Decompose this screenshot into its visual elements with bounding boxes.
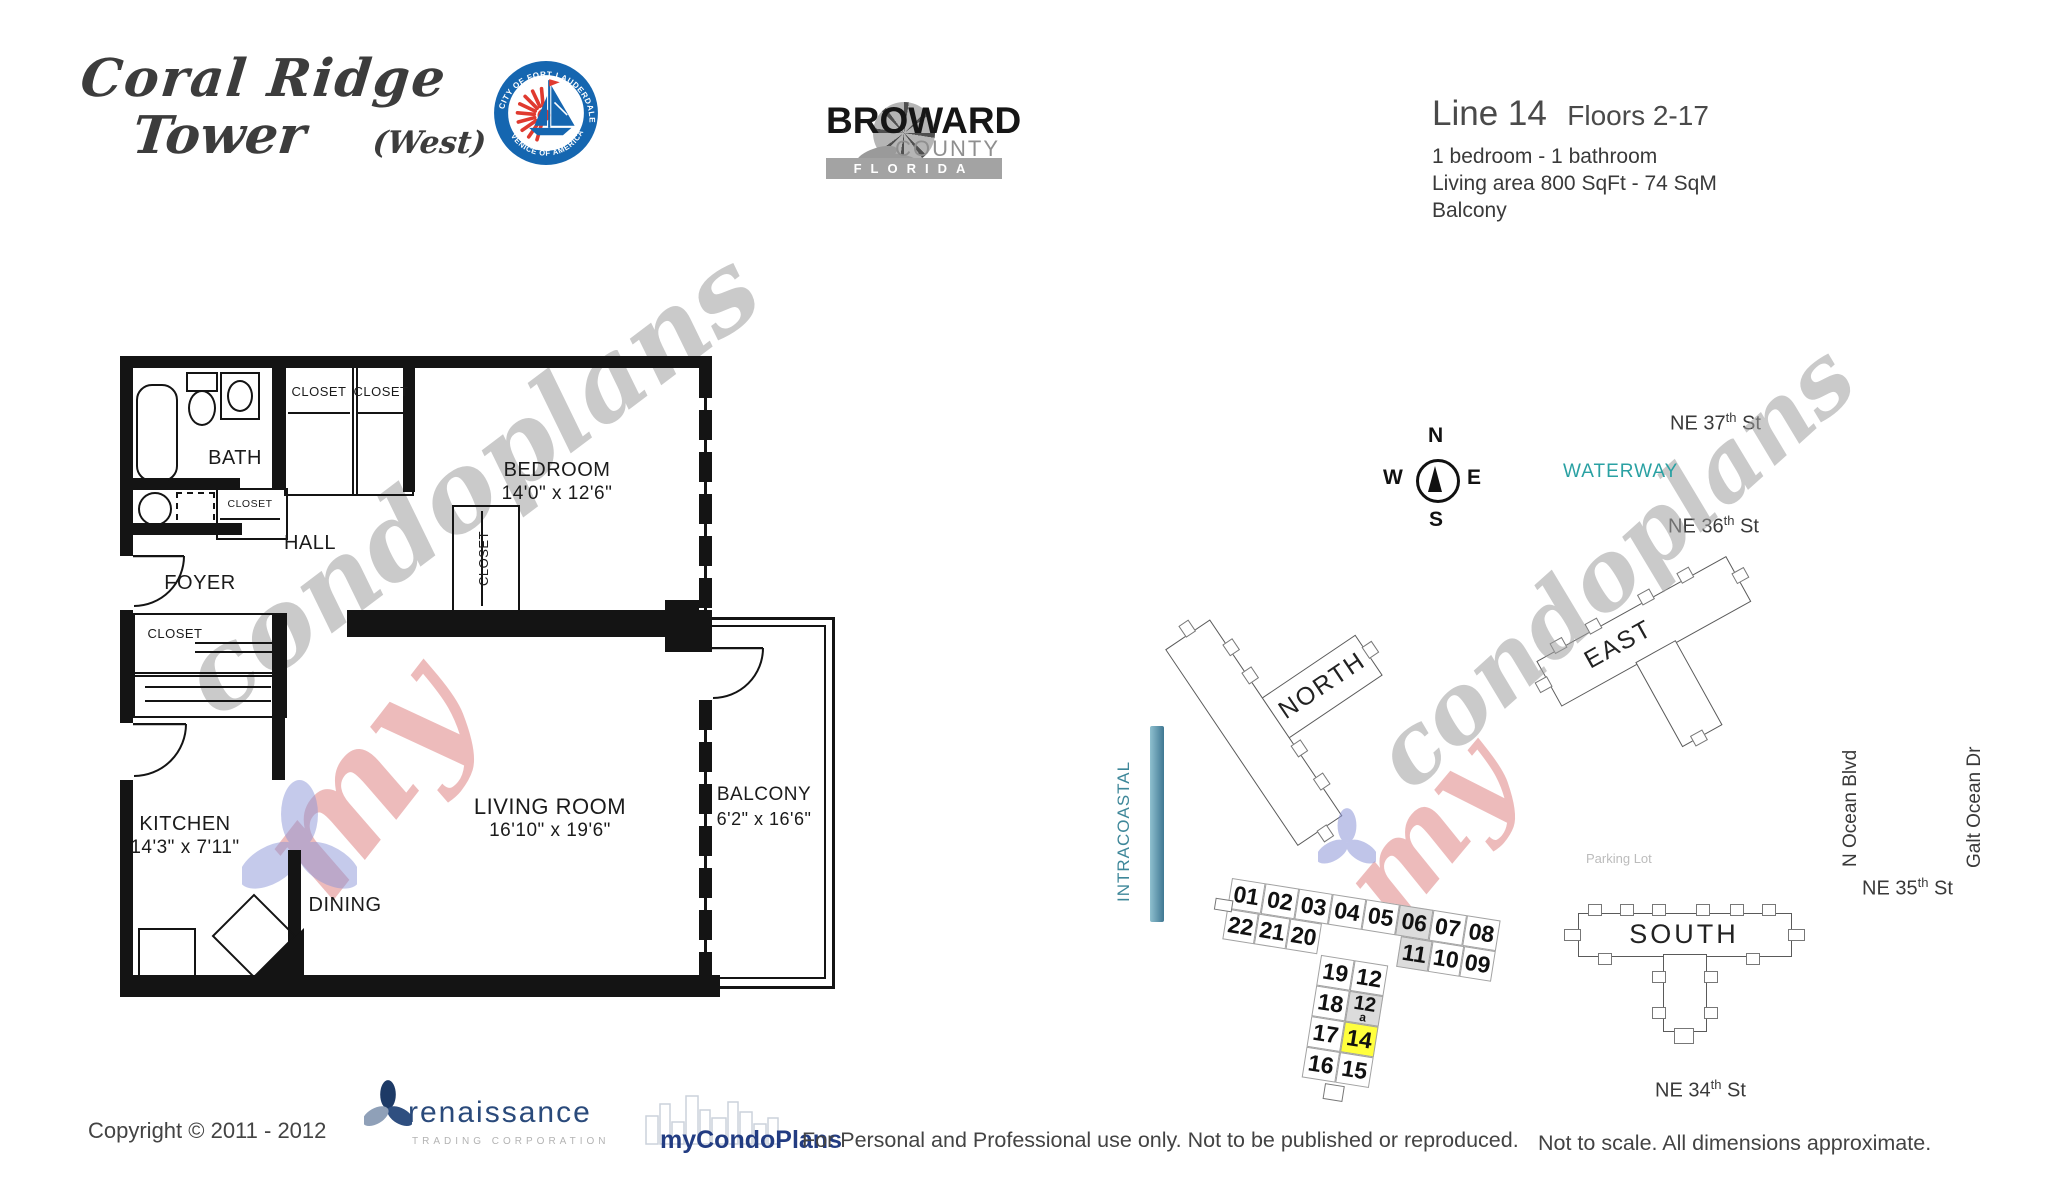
compass-e: E bbox=[1467, 466, 1481, 490]
compass-n: N bbox=[1428, 424, 1443, 448]
street-suffix: St bbox=[1721, 1080, 1745, 1102]
room-label-living-room: LIVING ROOM 16'10" x 19'6" bbox=[430, 795, 670, 843]
building-north: NORTH bbox=[1167, 557, 1434, 844]
balcony-bump bbox=[1214, 898, 1234, 913]
street-name: NE 37 bbox=[1670, 413, 1726, 435]
unit-living-area: Living area 800 SqFt - 74 SqM bbox=[1432, 171, 1717, 196]
room-label-bath: BATH bbox=[195, 446, 275, 470]
bedroom-dims: 14'0" x 12'6" bbox=[457, 482, 657, 506]
unit-12a-suffix: a bbox=[1359, 1011, 1367, 1022]
building-entry-bump bbox=[1323, 1083, 1345, 1102]
floor-plan: BATH CLOSET CLOSET BEDROOM 14'0" x 12'6"… bbox=[100, 350, 845, 1015]
usage-notice: For Personal and Professional use only. … bbox=[802, 1128, 1519, 1153]
condo-floor-plan-sheet: Coral Ridge Tower(West) CITY OF FO bbox=[0, 0, 2048, 1181]
building-entry-bump bbox=[1674, 1028, 1694, 1044]
intracoastal-bar bbox=[1150, 726, 1164, 922]
living-room-name: LIVING ROOM bbox=[430, 795, 670, 819]
building-south-stem bbox=[1663, 954, 1707, 1032]
bath-sink bbox=[227, 380, 253, 412]
unit-10: 10 bbox=[1428, 941, 1464, 977]
unit-09: 09 bbox=[1459, 946, 1495, 982]
shelf-line bbox=[145, 686, 271, 688]
unit-feature: Balcony bbox=[1432, 198, 1717, 223]
street-name: NE 34 bbox=[1655, 1080, 1711, 1102]
closet-shelf-line bbox=[195, 651, 277, 653]
wall bbox=[272, 368, 284, 490]
room-label-balcony: BALCONY 6'2" x 16'6" bbox=[708, 783, 820, 831]
watermark-right: condoplans my bbox=[1000, 350, 2048, 1050]
compass-needle bbox=[1428, 466, 1442, 492]
wall bbox=[347, 610, 712, 637]
street-label-ne-37th-st: NE 37th St bbox=[1670, 410, 1761, 436]
scale-disclaimer: Not to scale. All dimensions approximate… bbox=[1538, 1131, 1931, 1156]
unit-15: 15 bbox=[1335, 1052, 1373, 1088]
washer-dryer bbox=[176, 492, 215, 531]
wall bbox=[120, 356, 712, 368]
building-north-label: NORTH bbox=[1239, 618, 1405, 753]
unit-info: Line 14 Floors 2-17 1 bedroom - 1 bathro… bbox=[1432, 94, 1717, 223]
street-sup: th bbox=[1724, 513, 1735, 528]
unit-21: 21 bbox=[1254, 914, 1290, 950]
shelf-line bbox=[145, 700, 271, 702]
unit-stem: 19 18 17 16 12 12 a 14 15 bbox=[1302, 955, 1389, 1088]
room-label-closet: CLOSET bbox=[142, 622, 208, 646]
closet-shelf-line bbox=[356, 412, 406, 414]
window-wall bbox=[699, 700, 712, 977]
window-wall bbox=[699, 368, 712, 610]
street-label-ne-36th-st: NE 36th St bbox=[1668, 513, 1759, 539]
street-sup: th bbox=[1918, 875, 1929, 890]
room-label-dining: DINING bbox=[285, 893, 405, 917]
building-west-units: 01 02 03 04 05 06 07 08 22 21 20 11 10 0… bbox=[1222, 878, 1500, 982]
toilet-tank bbox=[186, 372, 218, 392]
kitchen-cabinet bbox=[138, 928, 196, 978]
living-room-dims: 16'10" x 19'6" bbox=[430, 819, 670, 843]
unit-22: 22 bbox=[1222, 909, 1258, 945]
unit-floors: Floors 2-17 bbox=[1567, 100, 1709, 131]
room-label-closet: CLOSET bbox=[219, 492, 281, 516]
street-name: NE 36 bbox=[1668, 516, 1724, 538]
unit-line-number: Line 14 bbox=[1432, 94, 1547, 133]
room-label-closet: CLOSET bbox=[353, 380, 409, 404]
bathtub bbox=[136, 384, 178, 482]
unit-20: 20 bbox=[1286, 919, 1322, 955]
room-label-hall: HALL bbox=[275, 531, 345, 555]
unit-bedrooms: 1 bedroom - 1 bathroom bbox=[1432, 144, 1717, 169]
compass-icon: N W E S bbox=[1383, 424, 1487, 534]
balcony-bump bbox=[1788, 929, 1805, 941]
balcony-bump bbox=[1704, 971, 1718, 983]
closet-shelf-line bbox=[288, 412, 350, 414]
balcony-bump bbox=[1652, 1007, 1666, 1019]
room-label-foyer: FOYER bbox=[152, 571, 248, 595]
compass-s: S bbox=[1429, 508, 1443, 532]
unit-line-heading: Line 14 Floors 2-17 bbox=[1432, 94, 1717, 134]
building-east: EAST bbox=[1536, 557, 1794, 788]
room-label-closet: CLOSET bbox=[286, 380, 352, 404]
unit-16: 16 bbox=[1302, 1047, 1340, 1083]
street-label-galt-ocean-dr: Galt Ocean Dr bbox=[1964, 716, 1986, 868]
street-name: NE 35 bbox=[1862, 878, 1918, 900]
building-south: SOUTH bbox=[1578, 913, 1790, 1048]
waterway-label: WATERWAY bbox=[1563, 461, 1678, 483]
wall bbox=[120, 610, 133, 723]
parking-lot-label: Parking Lot bbox=[1586, 851, 1652, 866]
street-suffix: St bbox=[1736, 413, 1760, 435]
balcony-bump bbox=[1704, 1007, 1718, 1019]
street-suffix: St bbox=[1734, 516, 1758, 538]
room-label-bedroom: BEDROOM 14'0" x 12'6" bbox=[457, 458, 657, 506]
street-sup: th bbox=[1711, 1077, 1722, 1092]
kitchen-name: KITCHEN bbox=[115, 812, 255, 836]
street-label-ne-34th-st: NE 34th St bbox=[1655, 1077, 1746, 1103]
vanity-sink bbox=[138, 492, 172, 526]
bedroom-name: BEDROOM bbox=[457, 458, 657, 482]
closet-shelf-line bbox=[220, 518, 280, 520]
unit-11: 11 bbox=[1396, 936, 1432, 972]
street-label-n-ocean-blvd: N Ocean Blvd bbox=[1840, 722, 1862, 867]
compass-w: W bbox=[1383, 466, 1403, 490]
room-label-kitchen: KITCHEN 14'3" x 7'11" bbox=[115, 812, 255, 860]
building-south-label: SOUTH bbox=[1578, 913, 1790, 955]
utility-box bbox=[133, 672, 287, 718]
room-label-closet-vertical: CLOSET bbox=[452, 522, 516, 594]
intracoastal-label: INTRACOASTAL bbox=[1114, 750, 1134, 902]
kitchen-dims: 14'3" x 7'11" bbox=[115, 836, 255, 860]
balcony-name: BALCONY bbox=[708, 783, 820, 807]
street-sup: th bbox=[1726, 410, 1737, 425]
balcony-bump bbox=[1652, 971, 1666, 983]
balcony-dims: 6'2" x 16'6" bbox=[708, 807, 820, 831]
street-suffix: St bbox=[1928, 878, 1952, 900]
street-label-ne-35th-st: NE 35th St bbox=[1862, 875, 1953, 901]
toilet-bowl bbox=[188, 390, 216, 426]
kitchen-door bbox=[133, 723, 189, 779]
wall bbox=[120, 975, 720, 997]
